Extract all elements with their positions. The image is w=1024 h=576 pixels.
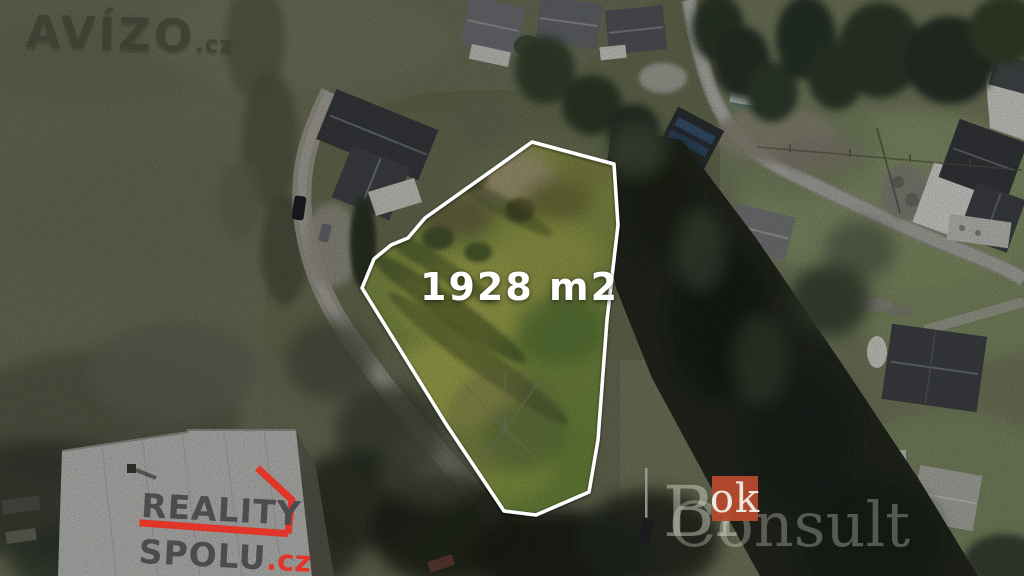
reality-spolu-text: SPOLU [138, 532, 268, 576]
avizo-tld: .cz [195, 32, 234, 59]
avizo-watermark: AVÍZO.cz [25, 9, 234, 60]
plot-area-label: 1928 m2 [420, 268, 619, 306]
reality-line1: REALITY [140, 489, 302, 530]
avizo-name: AVÍZO [25, 5, 196, 63]
brok-watermark-line2: Consult [669, 494, 910, 556]
brok-square-text: ok [710, 479, 760, 519]
real-estate-listing-photo: AVÍZO.cz 1928 m2 REALITY SPOLU.cz Br Con… [0, 0, 1024, 576]
brok-watermark-square: ok [712, 476, 758, 521]
reality-tld: .cz [265, 543, 312, 576]
reality-spolu-logo: REALITY SPOLU.cz [129, 452, 320, 576]
